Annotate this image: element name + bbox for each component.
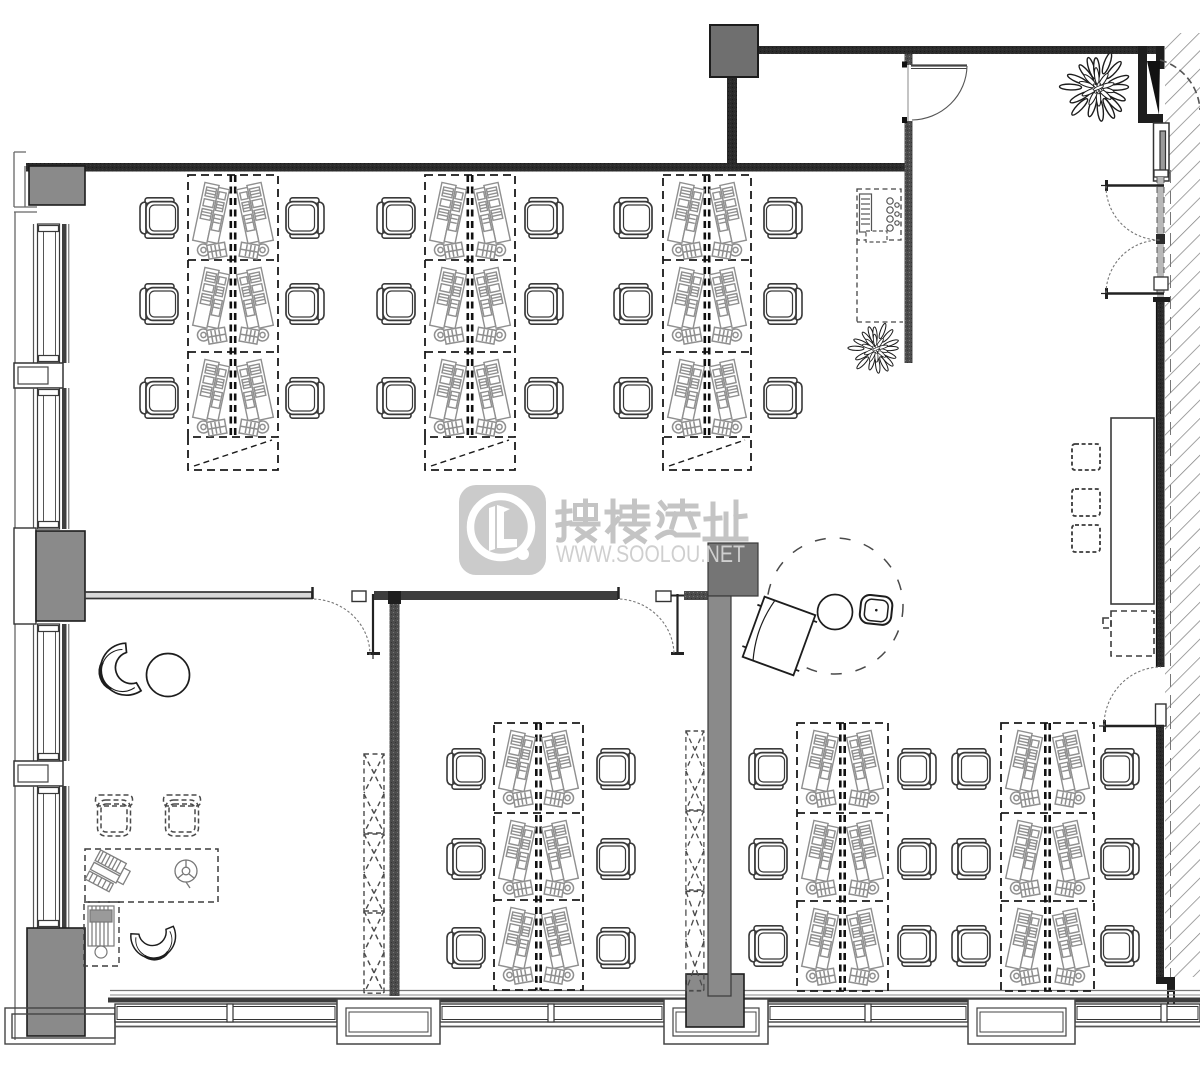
svg-text:WWW.SOOLOU.NET: WWW.SOOLOU.NET (556, 541, 745, 568)
